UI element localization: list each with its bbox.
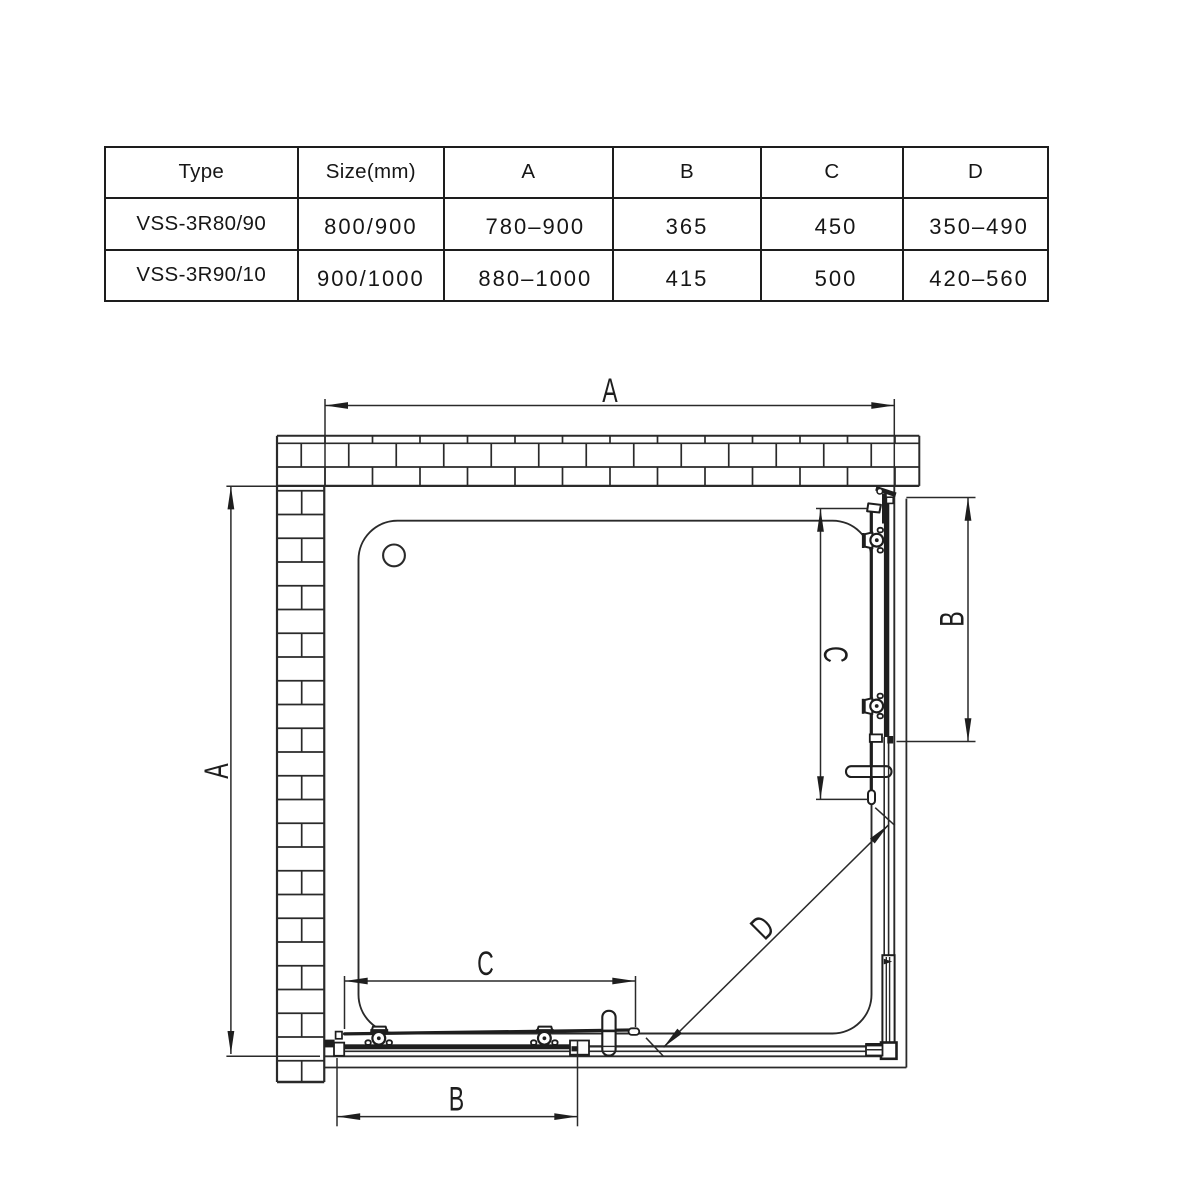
svg-text:B: B — [934, 611, 971, 626]
svg-text:B: B — [449, 1081, 464, 1118]
svg-text:C: C — [477, 946, 494, 983]
svg-text:C: C — [816, 646, 853, 663]
svg-text:A: A — [602, 373, 618, 410]
svg-text:D: D — [744, 909, 782, 947]
svg-text:A: A — [199, 763, 236, 779]
